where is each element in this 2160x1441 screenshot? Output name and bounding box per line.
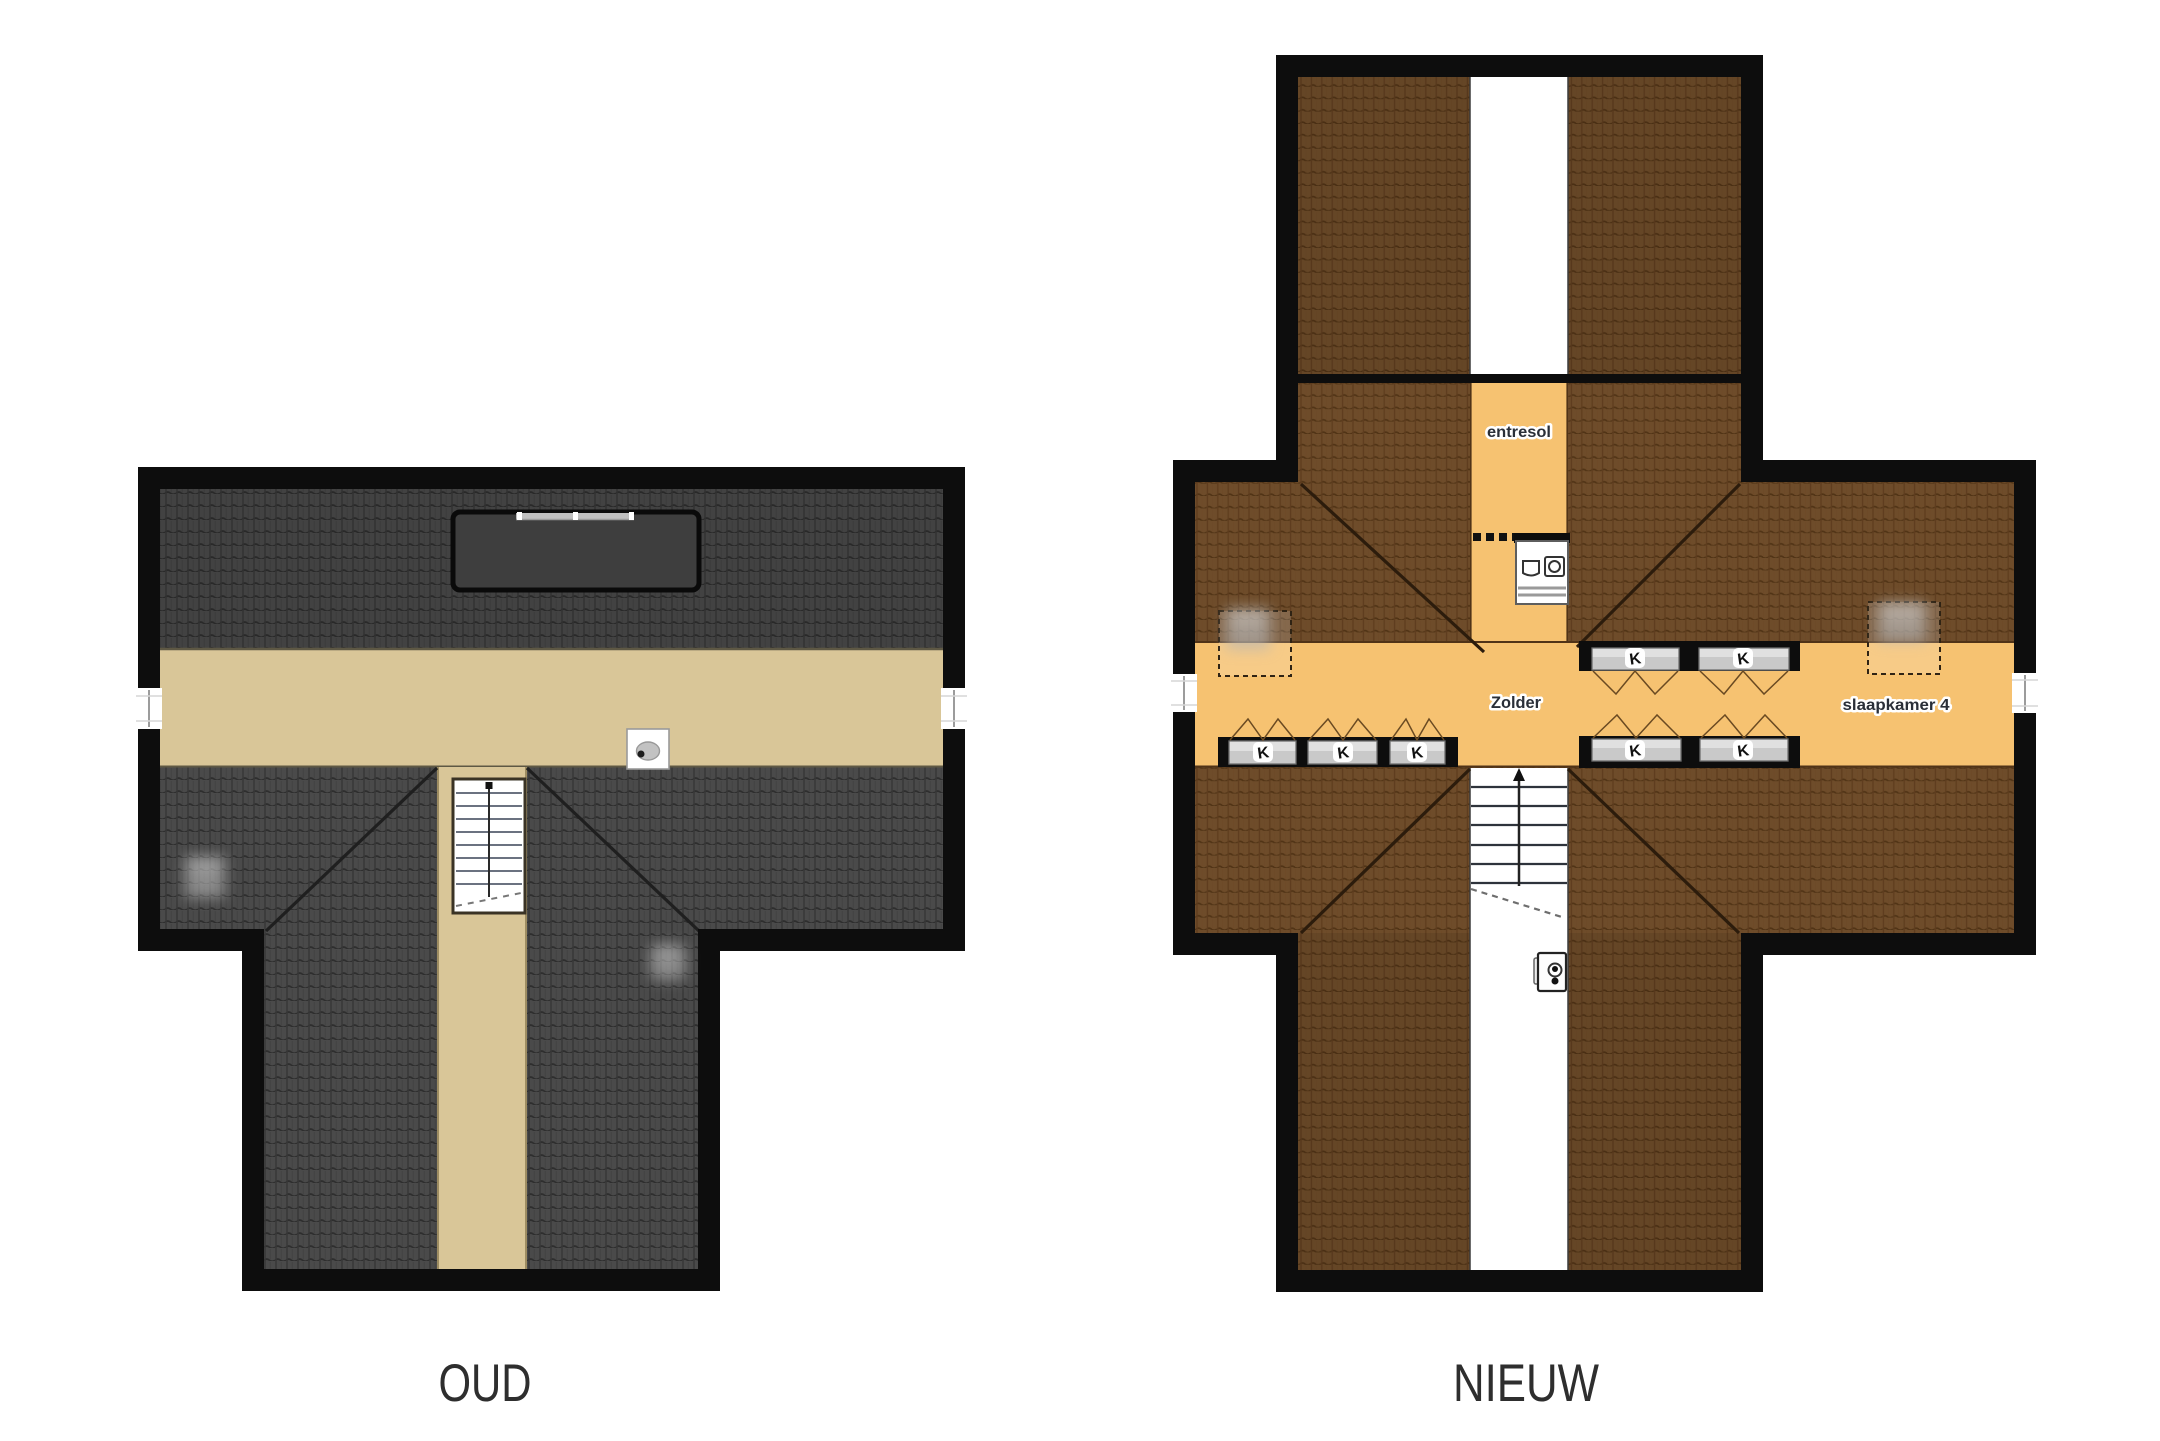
svg-text:OUD: OUD bbox=[439, 1354, 532, 1413]
svg-text:entresol: entresol bbox=[1487, 424, 1551, 441]
svg-text:slaapkamer 4: slaapkamer 4 bbox=[1843, 697, 1950, 714]
svg-text:Zolder: Zolder bbox=[1491, 694, 1542, 712]
svg-text:NIEUW: NIEUW bbox=[1453, 1354, 1599, 1413]
